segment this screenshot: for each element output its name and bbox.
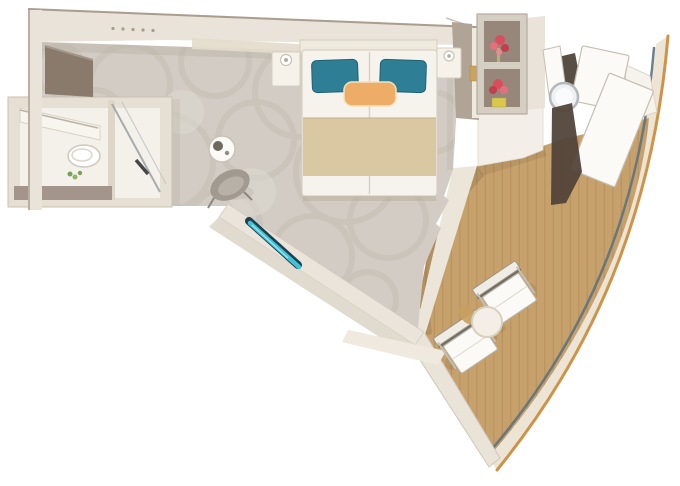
nightstand-right (437, 48, 461, 78)
bed-runner (303, 118, 436, 176)
shower-partition (108, 100, 115, 200)
shelf-divider (484, 62, 520, 69)
left-wall (28, 10, 42, 210)
lounger-table-top (555, 88, 573, 106)
accent-pillow (344, 82, 396, 106)
side-table-decor-2 (225, 151, 229, 155)
nightstand-left (272, 52, 300, 86)
floorplan-stage (0, 0, 680, 486)
bed-foot-shadow (303, 196, 436, 201)
deck-table (472, 307, 502, 337)
bathroom-drop-shadow (172, 99, 180, 206)
side-table-decor (213, 141, 223, 151)
floorplan-canvas (0, 0, 680, 486)
entry-wall (526, 16, 545, 110)
